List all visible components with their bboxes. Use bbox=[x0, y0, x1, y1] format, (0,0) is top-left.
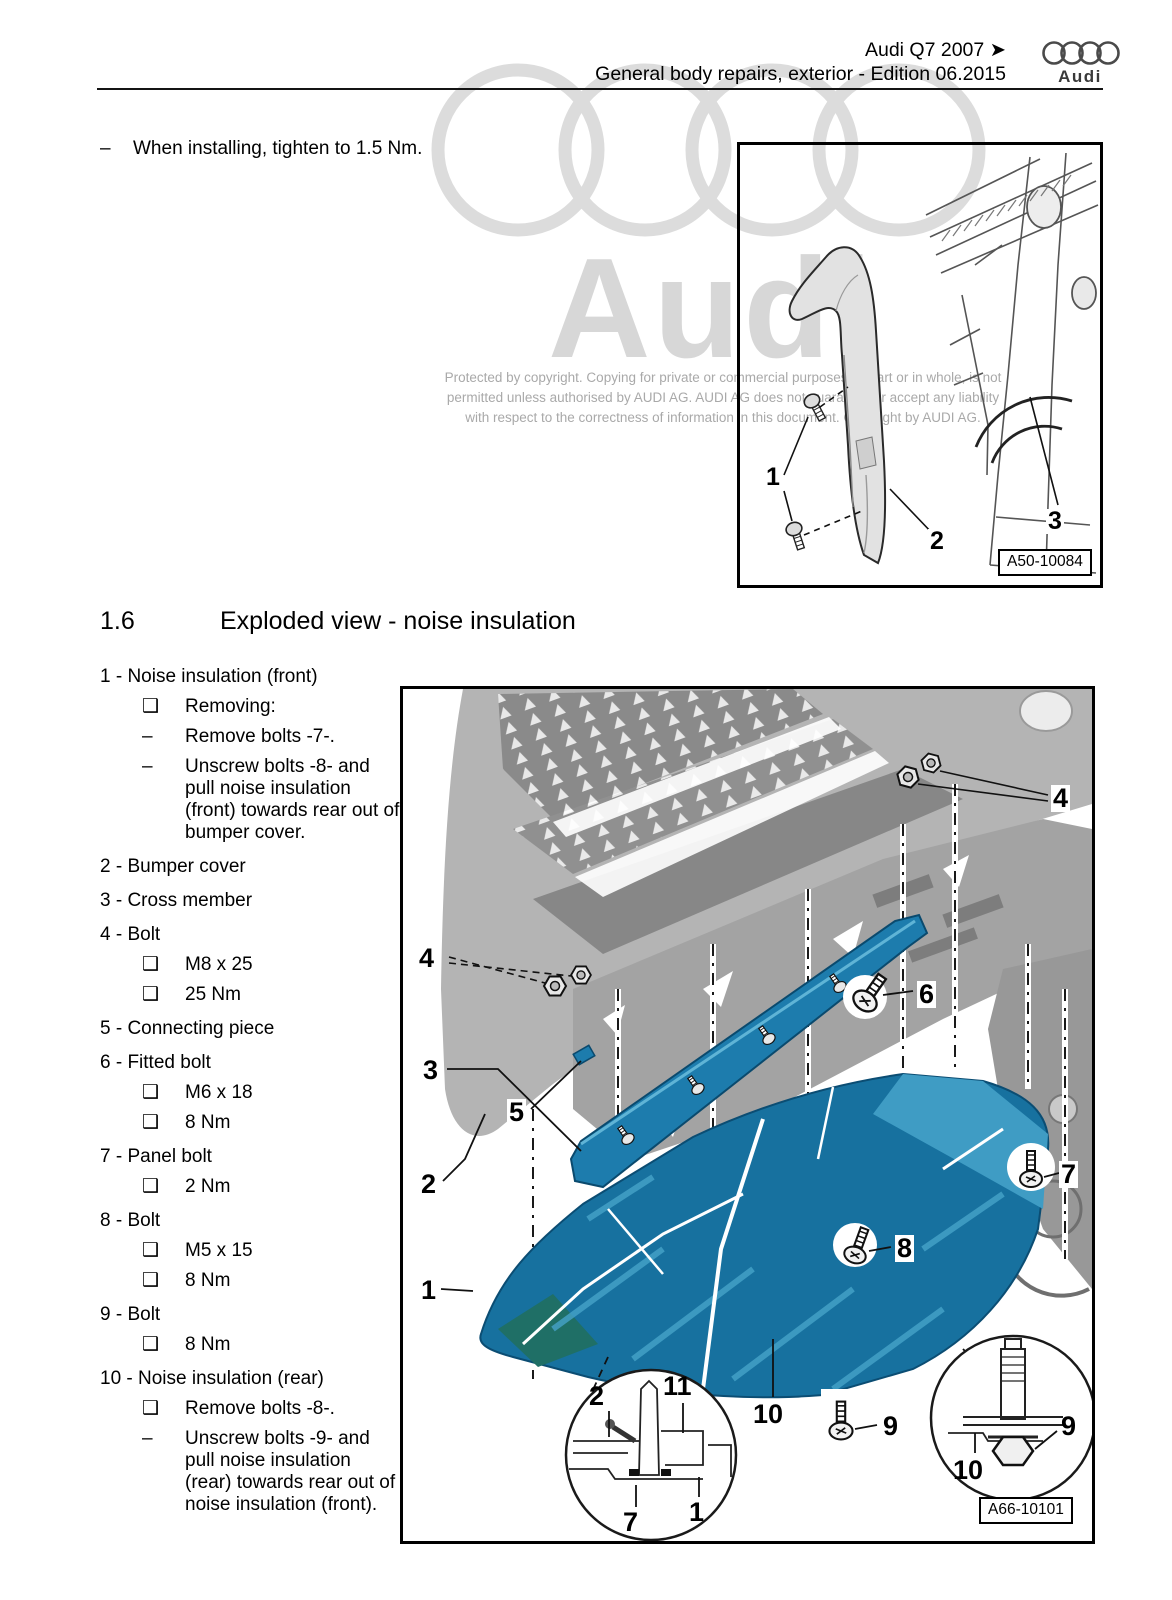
manual-page: Audi Protected by copyright. Copying for… bbox=[0, 0, 1172, 1600]
section-title: Exploded view - noise insulation bbox=[220, 607, 576, 636]
parts-list-item: 9 - Bolt ❑ 8 Nm bbox=[100, 1304, 400, 1356]
part-label: 10 - Noise insulation (rear) bbox=[100, 1368, 400, 1390]
callout-bolt9: 9 bbox=[881, 1413, 900, 1440]
detail-text: 8 Nm bbox=[185, 1270, 230, 1292]
part-detail: ❑ 8 Nm bbox=[100, 1334, 400, 1356]
part-detail: ❑ Remove bolts -8-. bbox=[100, 1398, 400, 1420]
detail-text: M8 x 25 bbox=[185, 954, 253, 976]
detail-text: Remove bolts -7-. bbox=[185, 726, 335, 748]
figure-pillar-trim: 1 2 3 A50-10084 bbox=[737, 142, 1103, 588]
detail-bullet: ❑ bbox=[142, 1398, 185, 1420]
part-label: 5 - Connecting piece bbox=[100, 1018, 400, 1040]
parts-list-item: 3 - Cross member bbox=[100, 890, 400, 912]
inset-left-callout-1: 1 bbox=[687, 1499, 706, 1526]
callout-fitted-bolt6: 6 bbox=[917, 981, 936, 1008]
detail-bullet: ❑ bbox=[142, 1334, 185, 1356]
inset-left-callout-7: 7 bbox=[621, 1509, 640, 1536]
callout-2: 2 bbox=[928, 529, 946, 554]
parts-list-item: 7 - Panel bolt ❑ 2 Nm bbox=[100, 1146, 400, 1198]
detail-bullet: ❑ bbox=[142, 1176, 185, 1198]
detail-bullet: ❑ bbox=[142, 1270, 185, 1292]
parts-list-item: 6 - Fitted bolt ❑ M6 x 18 ❑ 8 Nm bbox=[100, 1052, 400, 1134]
part-label: 7 - Panel bolt bbox=[100, 1146, 400, 1168]
parts-list-item: 5 - Connecting piece bbox=[100, 1018, 400, 1040]
callout-1: 1 bbox=[764, 465, 782, 490]
part-label: 9 - Bolt bbox=[100, 1304, 400, 1326]
part-detail: ❑ M6 x 18 bbox=[100, 1082, 400, 1104]
callout-bolt4-right: 4 bbox=[1051, 785, 1070, 812]
callout-bolt4-left: 4 bbox=[417, 945, 436, 972]
part-detail: ❑ Removing: bbox=[100, 696, 400, 718]
audi-rings-logo-icon bbox=[1042, 40, 1120, 66]
part-detail: ❑ M8 x 25 bbox=[100, 954, 400, 976]
header-rule bbox=[97, 88, 1103, 90]
detail-text: Remove bolts -8-. bbox=[185, 1398, 335, 1420]
parts-list-item: 4 - Bolt ❑ M8 x 25 ❑ 25 Nm bbox=[100, 924, 400, 1006]
part-detail: ❑ M5 x 15 bbox=[100, 1240, 400, 1262]
section-number: 1.6 bbox=[100, 607, 135, 636]
header-model-line: Audi Q7 2007 ➤ bbox=[0, 38, 1006, 62]
detail-bullet: ❑ bbox=[142, 1240, 185, 1262]
detail-text: Removing: bbox=[185, 696, 276, 718]
header-doc-line: General body repairs, exterior - Edition… bbox=[0, 63, 1006, 86]
detail-text: 8 Nm bbox=[185, 1112, 230, 1134]
note-dash: – bbox=[100, 138, 133, 160]
part-label: 4 - Bolt bbox=[100, 924, 400, 946]
part-detail: ❑ 2 Nm bbox=[100, 1176, 400, 1198]
detail-bullet: ❑ bbox=[142, 954, 185, 976]
callout-3: 3 bbox=[1046, 509, 1064, 534]
figure-exploded-noise-insulation: 4 4 6 3 5 2 7 8 1 10 9 2 11 7 1 10 9 A66… bbox=[400, 686, 1095, 1544]
callout-bolt8: 8 bbox=[895, 1235, 914, 1262]
inset-left-callout-11: 11 bbox=[661, 1373, 694, 1400]
callout-connecting-piece5: 5 bbox=[507, 1099, 526, 1126]
part-detail: – Unscrew bolts -8- and pull noise insul… bbox=[100, 756, 400, 844]
part-detail: ❑ 8 Nm bbox=[100, 1270, 400, 1292]
detail-bullet: – bbox=[142, 1428, 185, 1516]
detail-bullet: – bbox=[142, 726, 185, 748]
detail-text: Unscrew bolts -8- and pull noise insulat… bbox=[185, 756, 400, 844]
detail-bullet: ❑ bbox=[142, 696, 185, 718]
detail-bullet: ❑ bbox=[142, 984, 185, 1006]
parts-list-item: 10 - Noise insulation (rear) ❑ Remove bo… bbox=[100, 1368, 400, 1516]
detail-bullet: ❑ bbox=[142, 1112, 185, 1134]
inset-left-callout-2: 2 bbox=[587, 1383, 606, 1410]
part-label: 3 - Cross member bbox=[100, 890, 400, 912]
part-label: 6 - Fitted bolt bbox=[100, 1052, 400, 1074]
parts-list-item: 2 - Bumper cover bbox=[100, 856, 400, 878]
detail-bullet: – bbox=[142, 756, 185, 844]
note-text: When installing, tighten to 1.5 Nm. bbox=[133, 138, 422, 159]
part-label: 1 - Noise insulation (front) bbox=[100, 666, 400, 688]
part-detail: – Unscrew bolts -9- and pull noise insul… bbox=[100, 1428, 400, 1516]
audi-wordmark-logo: Audi bbox=[1040, 67, 1120, 87]
detail-text: M6 x 18 bbox=[185, 1082, 253, 1104]
part-detail: ❑ 25 Nm bbox=[100, 984, 400, 1006]
part-detail: ❑ 8 Nm bbox=[100, 1112, 400, 1134]
part-label: 2 - Bumper cover bbox=[100, 856, 400, 878]
callout-bumper-cover2: 2 bbox=[419, 1171, 438, 1198]
figure-ref-label: A66-10101 bbox=[979, 1497, 1073, 1524]
inset-right-callout-9: 9 bbox=[1059, 1413, 1078, 1440]
figure-ref-label: A50-10084 bbox=[998, 549, 1092, 576]
part-label: 8 - Bolt bbox=[100, 1210, 400, 1232]
callout-panel-bolt7: 7 bbox=[1059, 1161, 1078, 1188]
detail-text: 25 Nm bbox=[185, 984, 241, 1006]
callout-cross-member3: 3 bbox=[421, 1057, 440, 1084]
detail-text: 8 Nm bbox=[185, 1334, 230, 1356]
parts-list: 1 - Noise insulation (front) ❑ Removing:… bbox=[100, 666, 400, 1516]
detail-text: Unscrew bolts -9- and pull noise insulat… bbox=[185, 1428, 400, 1516]
part-detail: – Remove bolts -7-. bbox=[100, 726, 400, 748]
inset-right-callout-10: 10 bbox=[951, 1457, 985, 1484]
callout-insulation-front1: 1 bbox=[419, 1277, 438, 1304]
install-note: –When installing, tighten to 1.5 Nm. bbox=[100, 138, 422, 160]
parts-list-item: 1 - Noise insulation (front) ❑ Removing:… bbox=[100, 666, 400, 844]
detail-text: M5 x 15 bbox=[185, 1240, 253, 1262]
parts-list-item: 8 - Bolt ❑ M5 x 15 ❑ 8 Nm bbox=[100, 1210, 400, 1292]
callout-insulation-rear10: 10 bbox=[751, 1401, 785, 1428]
detail-text: 2 Nm bbox=[185, 1176, 230, 1198]
detail-bullet: ❑ bbox=[142, 1082, 185, 1104]
